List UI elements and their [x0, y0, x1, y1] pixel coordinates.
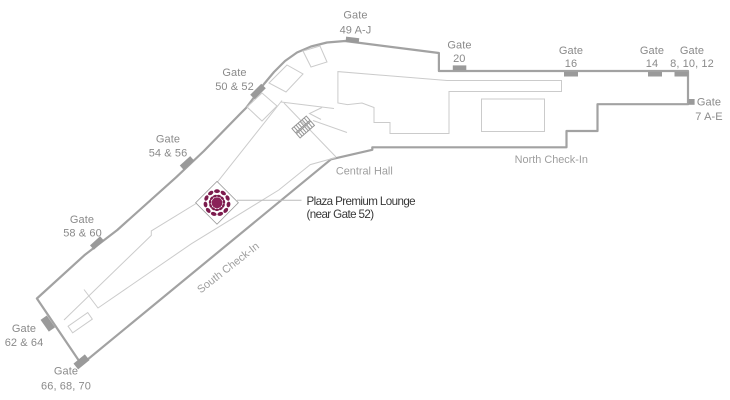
- svg-text:North Check-In: North Check-In: [515, 154, 588, 166]
- svg-text:Plaza Premium Lounge: Plaza Premium Lounge: [307, 195, 416, 208]
- svg-text:Gate: Gate: [70, 214, 94, 226]
- svg-text:Gate: Gate: [559, 45, 583, 57]
- svg-text:Gate: Gate: [343, 10, 367, 22]
- svg-text:8, 10, 12: 8, 10, 12: [670, 58, 714, 70]
- svg-text:62 & 64: 62 & 64: [5, 337, 44, 349]
- svg-text:Gate: Gate: [697, 97, 721, 109]
- svg-text:Gate: Gate: [222, 67, 246, 79]
- svg-text:Gate: Gate: [447, 40, 471, 52]
- svg-text:58 & 60: 58 & 60: [63, 228, 102, 240]
- svg-text:7 A-E: 7 A-E: [695, 111, 722, 123]
- svg-text:Central Hall: Central Hall: [336, 166, 393, 178]
- svg-text:16: 16: [565, 58, 577, 70]
- svg-text:49 A-J: 49 A-J: [340, 25, 372, 37]
- svg-text:Gate: Gate: [156, 134, 180, 146]
- svg-text:Gate: Gate: [54, 366, 78, 378]
- svg-text:54 & 56: 54 & 56: [149, 147, 188, 159]
- svg-text:Gate: Gate: [680, 45, 704, 57]
- svg-text:20: 20: [453, 53, 465, 65]
- svg-text:14: 14: [646, 58, 658, 70]
- svg-text:(near Gate 52): (near Gate 52): [307, 208, 375, 221]
- svg-text:66, 68, 70: 66, 68, 70: [41, 381, 91, 393]
- svg-text:Gate: Gate: [640, 45, 664, 57]
- svg-text:50 & 52: 50 & 52: [215, 81, 254, 93]
- svg-text:Gate: Gate: [12, 323, 36, 335]
